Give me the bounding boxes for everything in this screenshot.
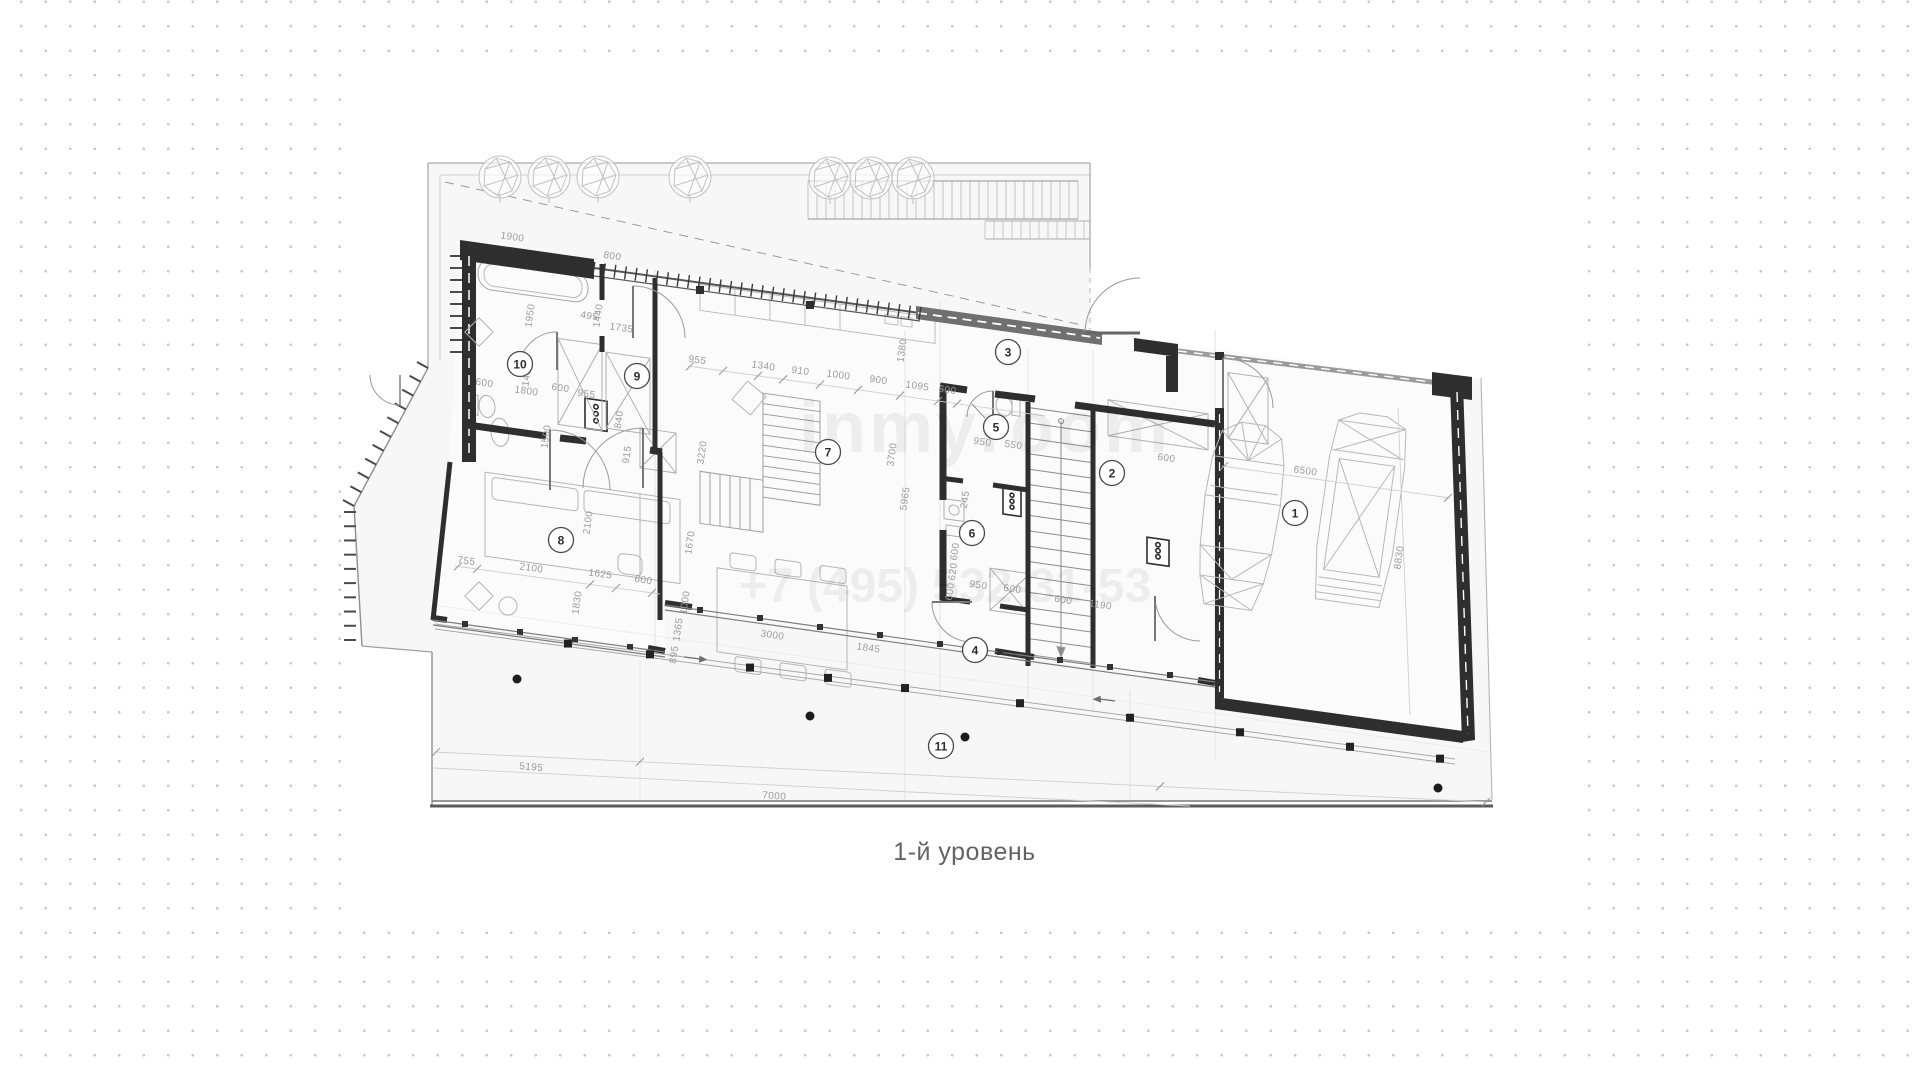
room-number: 2 bbox=[1109, 467, 1116, 481]
room-number: 6 bbox=[969, 527, 976, 541]
entrance-door-arc bbox=[1085, 278, 1140, 333]
dimension-label: 5195 bbox=[519, 761, 544, 774]
room-number: 9 bbox=[634, 370, 641, 384]
page-background: { "caption": "1-й уровень", "watermark":… bbox=[0, 0, 1920, 1078]
room-number: 11 bbox=[935, 740, 948, 754]
room-number: 4 bbox=[972, 644, 979, 658]
floor-plan-drawing: inmyroom +7 (495) 532-31-53 190080019504… bbox=[0, 0, 1920, 1078]
room-number: 5 bbox=[993, 421, 1000, 435]
room-number: 1 bbox=[1292, 507, 1299, 521]
room-number: 7 bbox=[825, 446, 832, 460]
room-number: 3 bbox=[1005, 346, 1012, 360]
room-number: 10 bbox=[513, 358, 527, 372]
dimension-label: 7000 bbox=[762, 790, 787, 803]
side-gate-arc bbox=[370, 375, 400, 405]
floor-caption: 1-й уровень bbox=[348, 838, 1581, 867]
room-number: 8 bbox=[558, 534, 565, 548]
